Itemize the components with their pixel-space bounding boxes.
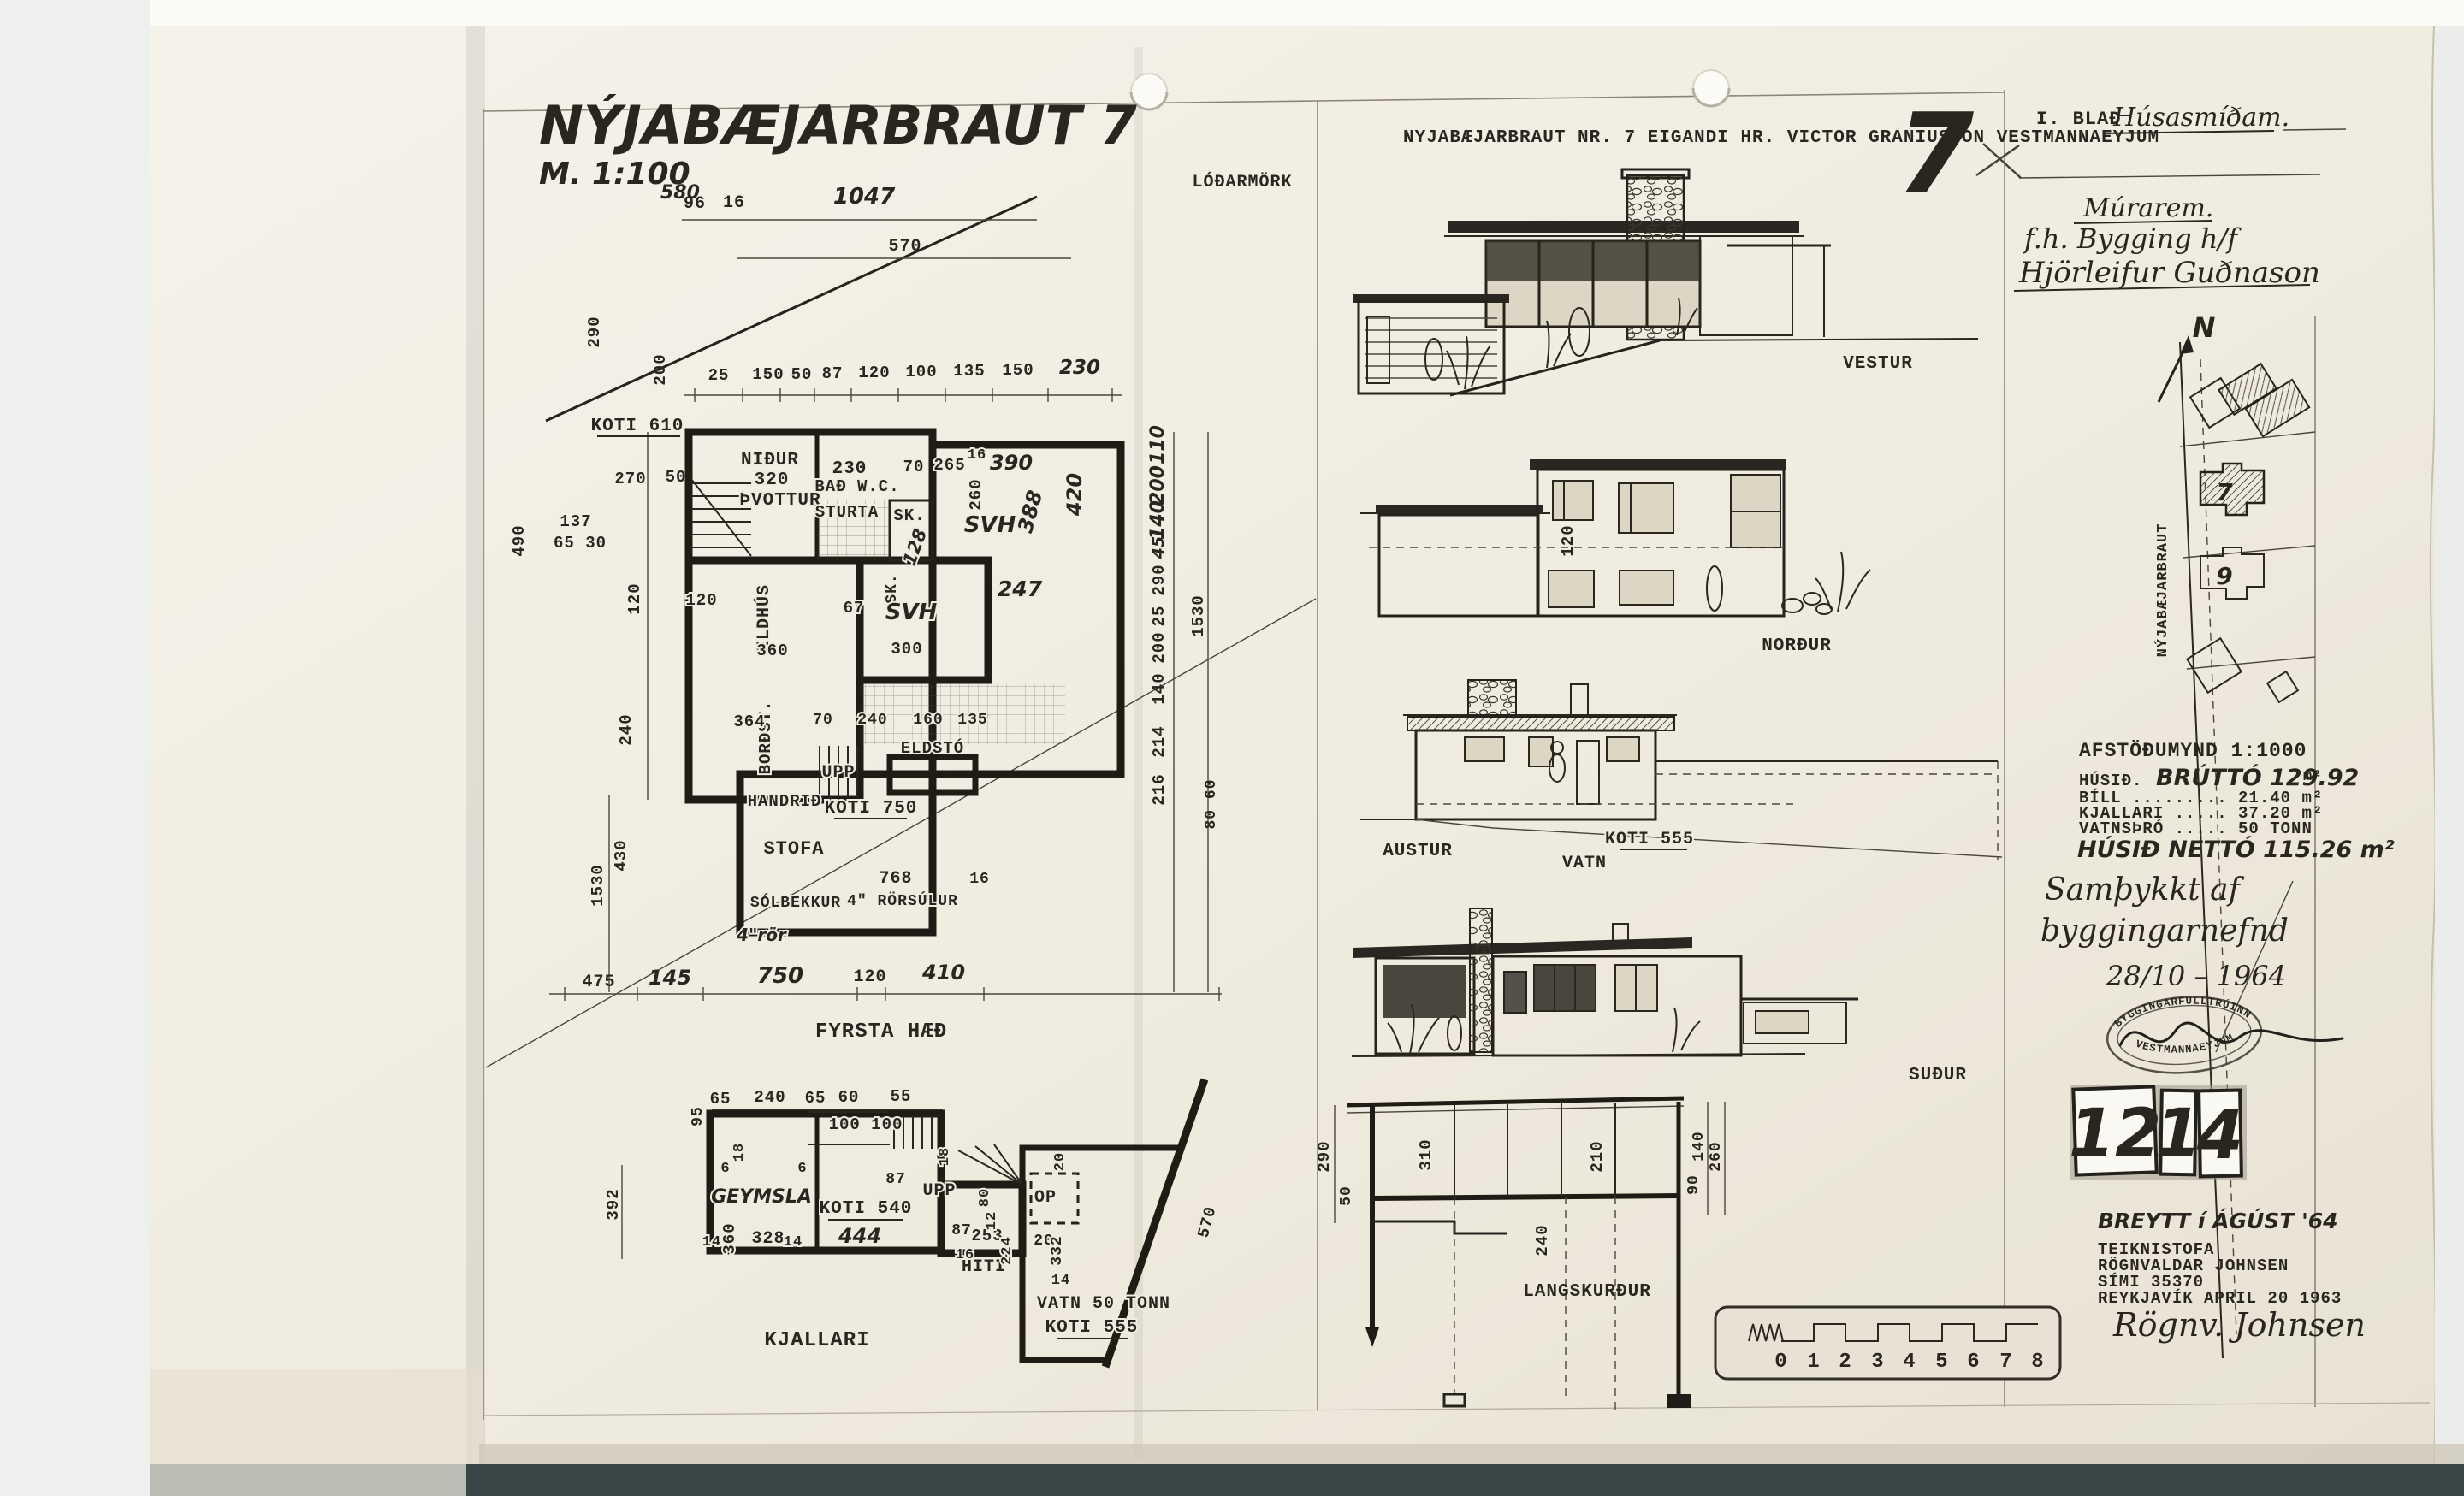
dim: 364	[733, 713, 765, 731]
stat-husid-unit: m²	[2303, 769, 2322, 785]
dim: 390	[990, 451, 1033, 475]
dim: 120	[625, 582, 644, 614]
room-label: SK.	[893, 506, 925, 525]
dim: 95	[690, 1106, 707, 1126]
room-label: 4"rör	[736, 925, 787, 945]
room-label: HANDRIÐ	[748, 792, 822, 811]
dim: 160	[913, 712, 943, 729]
dim: 570	[888, 237, 921, 257]
room-label: STOFA	[763, 838, 824, 860]
scanned-blueprint-sheet: NÝJABÆJARBRAUT 7 M. 1:100 580 NYJABÆJARB…	[0, 0, 2464, 1496]
tile-digit-1: 1	[2155, 1096, 2201, 1173]
dim: 55	[891, 1087, 912, 1106]
dim: 65	[805, 1089, 826, 1108]
north-label: N	[2193, 311, 2216, 344]
room-dim: 320	[755, 470, 790, 490]
dim: 14	[702, 1234, 721, 1251]
sheet-number-tiles: 12 1 4	[2069, 1085, 2247, 1180]
dim: 96	[684, 194, 706, 214]
dim: 230	[1059, 357, 1100, 379]
dim: 214	[1150, 725, 1169, 757]
breytt-note: BREYTT í ÁGÚST '64	[2098, 1208, 2338, 1233]
dim: 18	[731, 1143, 748, 1162]
plan-name-first-floor: FYRSTA HÆÐ	[815, 1020, 947, 1044]
tile-digit-4: 4	[2196, 1097, 2243, 1174]
dim: 6	[720, 1161, 730, 1177]
plan-name-basement: KJALLARI	[764, 1329, 869, 1352]
dim: 260	[1708, 1141, 1725, 1171]
elevation-label: AUSTUR	[1383, 842, 1453, 861]
room-label: OP	[1034, 1188, 1057, 1208]
dim: 240	[857, 712, 887, 729]
dim: 768	[879, 869, 912, 889]
dim: 1530	[589, 864, 607, 907]
approval-line-1: Samþykkt af	[2045, 872, 2245, 908]
dim: 137	[560, 512, 591, 531]
dim: 360	[756, 642, 788, 660]
tile-digits-12: 12	[2069, 1096, 2162, 1173]
typed-header: NYJABÆJARBRAUT NR. 7 EIGANDI HR. VICTOR …	[1403, 128, 2159, 148]
scale-tick: 3	[1871, 1351, 1884, 1374]
dim: 430	[612, 839, 631, 871]
dim: 70	[813, 712, 833, 729]
dim: 60	[838, 1088, 860, 1107]
dim: 90	[1685, 1174, 1703, 1195]
dim: 80	[977, 1188, 993, 1207]
room-label: NIÐUR	[741, 451, 799, 470]
dim: 110	[1147, 425, 1169, 464]
dim: 16	[968, 447, 986, 464]
dim: 12	[984, 1211, 1000, 1230]
dim: 140	[1691, 1131, 1708, 1161]
dim: 120	[685, 591, 717, 610]
dim: 87	[951, 1222, 972, 1239]
room-label: 4" RÖRSÚLUR	[847, 891, 958, 910]
dim: 87	[822, 364, 844, 383]
dim: 16	[956, 1247, 974, 1263]
dim: 65	[710, 1090, 731, 1109]
scale-tick: 1	[1807, 1351, 1820, 1374]
stat-husid-netto: HÚSIÐ NETTÓ 115.26 m²	[2077, 836, 2395, 863]
dim: 210	[1588, 1140, 1607, 1172]
room-label: UPP	[821, 763, 855, 783]
afstodumynd-label: AFSTÖÐUMYND 1:1000	[2079, 739, 2307, 762]
fh-bygging: f.h. Bygging h/f	[2023, 222, 2242, 255]
dim: 475	[582, 973, 615, 992]
dim: 290	[1315, 1140, 1334, 1172]
dim: 265	[933, 456, 965, 475]
koti-750: KOTI 750	[825, 799, 918, 819]
approval-line-2: byggingarnefnd	[2040, 914, 2289, 949]
dim: 120	[853, 967, 886, 987]
dim: 490	[510, 524, 529, 556]
dim: 20	[1052, 1152, 1069, 1171]
scale-tick: 4	[1903, 1351, 1916, 1374]
dim: 140	[1147, 500, 1169, 540]
dim: 135	[957, 712, 987, 729]
scale-bar: 0 1 2 3 4 5 6 7 8	[1715, 1307, 2060, 1379]
koti-555-austur: KOTI 555	[1605, 830, 1694, 849]
dim: 100	[905, 363, 937, 381]
room-label: SÓLBEKKUR	[750, 893, 841, 912]
dim: 1530	[1189, 594, 1208, 637]
koti-610: KOTI 610	[591, 417, 684, 436]
dim: 240	[617, 713, 636, 745]
dim: 310	[1417, 1138, 1436, 1170]
lot-number-7: 7	[2216, 478, 2233, 506]
architect-signature: Rögnv. Johnsen	[2112, 1306, 2366, 1344]
approval-date: 28/10 – 1964	[2106, 960, 2286, 992]
blad-label: I. BLAÐ	[2036, 109, 2121, 130]
dim: 1047	[833, 184, 896, 210]
stat-husid-label: HÚSIÐ.	[2079, 772, 2142, 790]
scale-tick: 2	[1839, 1351, 1851, 1374]
stat-husid-brutto: BRÚTTÓ 129.92	[2156, 764, 2359, 791]
dim: 120	[858, 364, 890, 382]
scale-tick: 0	[1774, 1351, 1787, 1374]
dim: 750	[757, 963, 803, 989]
dim: 45	[1149, 536, 1168, 559]
room-label: BORÐST.	[756, 701, 775, 775]
dim: 87	[885, 1171, 906, 1188]
murarem: Múrarem.	[2082, 193, 2213, 223]
dim: 240	[1533, 1224, 1552, 1256]
dim: 50	[1338, 1186, 1355, 1206]
koti-540: KOTI 540	[820, 1199, 913, 1219]
dim: 224	[999, 1236, 1016, 1265]
dim: 200	[651, 353, 670, 385]
dim: 150	[1002, 361, 1034, 380]
room-label: SVH	[885, 600, 938, 625]
dim: 80 60	[1203, 778, 1220, 829]
dim: 270	[614, 470, 646, 488]
dim: 145	[649, 966, 691, 990]
dim: 16	[969, 871, 990, 888]
dim: 216	[1150, 773, 1169, 805]
scale-tick: 8	[2031, 1351, 2044, 1374]
dim: 290	[1150, 564, 1169, 595]
dim: 240	[754, 1088, 785, 1107]
section-label: LANGSKURÐUR	[1523, 1282, 1651, 1302]
dim: 6	[797, 1161, 807, 1177]
dim: 50	[666, 468, 687, 487]
room-label: BAÐ W.C.	[814, 477, 899, 496]
dim: 16	[723, 193, 745, 213]
elevation-label: VESTUR	[1843, 354, 1913, 374]
room-label: GEYMSLA	[711, 1186, 812, 1208]
scale-tick: 5	[1935, 1351, 1948, 1374]
vatn-austur: VATN	[1562, 854, 1607, 873]
dim: 14	[1051, 1273, 1070, 1289]
dim: 300	[891, 640, 922, 659]
dim: 25	[708, 366, 730, 385]
room-label: UPP	[922, 1181, 956, 1201]
hole-punch-right	[1693, 70, 1729, 106]
dim: 120	[1559, 524, 1578, 556]
room-label: SVH	[964, 512, 1016, 538]
dim: 25	[1150, 606, 1169, 627]
dim: 410	[921, 961, 965, 985]
firm-line-4: REYKJAVÍK APRIL 20 1963	[2098, 1289, 2342, 1308]
dim: 328	[751, 1229, 785, 1249]
dim: 260	[967, 478, 986, 510]
dim: 70	[903, 458, 925, 476]
dim: 100 100	[829, 1115, 903, 1134]
scale-tick: 6	[1967, 1351, 1980, 1374]
scale-tick: 7	[1999, 1351, 2012, 1374]
street-label: NÝJABÆJARBRAUT	[2154, 523, 2171, 658]
room-label: ÞVOTTUR	[739, 491, 820, 511]
elevation-label: SUÐUR	[1909, 1066, 1967, 1085]
dim: 444	[838, 1224, 881, 1248]
dim: 332	[1049, 1235, 1066, 1265]
dim: 290	[585, 316, 604, 347]
hand-title: NÝJABÆJARBRAUT 7	[539, 94, 1138, 157]
dim: 360	[720, 1222, 739, 1254]
dim: 135	[953, 362, 985, 381]
room-dim: 230	[832, 459, 868, 479]
dim: 247	[998, 577, 1043, 601]
blad-value: Húsasmíðam.	[2112, 103, 2289, 133]
lodarmork-label: LÓÐARMÖRK	[1192, 172, 1292, 192]
dim: 14	[784, 1234, 803, 1251]
stat-vatnsthro: VATNSÞRÓ ..... 50 TONN	[2079, 819, 2313, 838]
dim: 140	[1150, 672, 1169, 704]
dim: 200	[1147, 465, 1169, 505]
vatn-label: VATN 50 TONN	[1037, 1294, 1170, 1314]
dim: 150	[752, 365, 784, 384]
big-seven: 7	[1897, 89, 1975, 219]
lot-number-9: 9	[2216, 562, 2232, 590]
blueprint-canvas: NÝJABÆJARBRAUT 7 M. 1:100 580 NYJABÆJARB…	[0, 0, 2464, 1496]
dim: 67	[844, 599, 865, 618]
dim: 65 30	[554, 534, 607, 553]
dim: 392	[604, 1188, 623, 1220]
dim: 420	[1063, 473, 1087, 517]
dim: 18	[937, 1147, 953, 1166]
room-label: ELDSTÓ	[901, 739, 964, 758]
room-label: STURTA	[815, 503, 879, 522]
koti-555: KOTI 555	[1045, 1318, 1139, 1338]
dim: 200	[1150, 631, 1169, 663]
elevation-label: NORÐUR	[1762, 636, 1832, 656]
dim: 50	[791, 365, 813, 384]
